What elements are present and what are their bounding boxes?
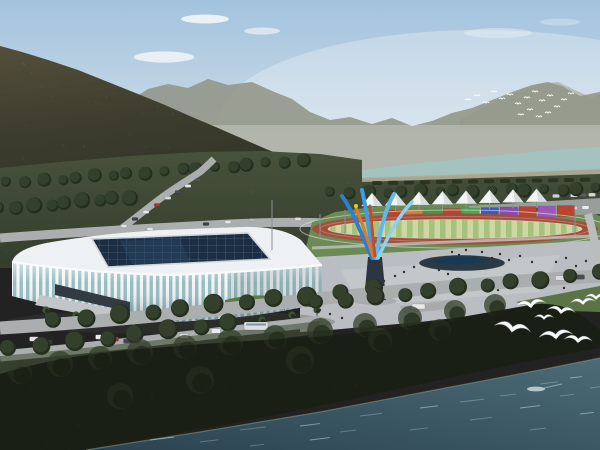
tree <box>78 310 93 325</box>
tree <box>146 305 160 319</box>
tree <box>569 182 581 194</box>
tree <box>239 295 253 309</box>
car <box>195 179 201 182</box>
tree <box>94 195 104 205</box>
car <box>165 197 171 200</box>
distant-tree-dash <box>436 180 446 184</box>
car <box>154 204 160 207</box>
tree <box>449 278 464 293</box>
pedestrian <box>473 256 475 258</box>
tree <box>398 288 410 300</box>
car <box>132 218 138 221</box>
car <box>203 223 209 226</box>
tree <box>88 168 100 180</box>
tree <box>309 295 321 307</box>
cloud <box>134 52 194 63</box>
palm-crown-shade <box>45 309 49 313</box>
pedestrian <box>394 275 396 277</box>
container-segment <box>538 206 556 217</box>
tree <box>481 279 493 291</box>
tree <box>171 300 186 315</box>
distant-tree-dash <box>468 180 478 184</box>
pedestrian <box>458 254 460 256</box>
distant-tree-dash <box>372 181 382 185</box>
parked-car <box>589 193 596 197</box>
tree <box>159 320 176 337</box>
car <box>147 228 153 231</box>
pedestrian <box>438 269 440 271</box>
tree <box>344 187 354 197</box>
palm-crown-shade <box>291 314 295 318</box>
tree <box>325 187 334 196</box>
tree <box>367 288 382 303</box>
car <box>185 185 191 188</box>
tree <box>111 305 128 322</box>
tree <box>518 184 530 196</box>
scene-canvas <box>0 0 600 450</box>
tree <box>447 184 457 194</box>
tree <box>204 294 221 311</box>
tree <box>126 325 141 340</box>
tree <box>47 200 57 210</box>
tree <box>159 166 168 175</box>
tree <box>194 320 208 334</box>
car <box>249 219 255 222</box>
palm-crown-shade <box>316 309 320 313</box>
distant-tree-dash <box>404 181 414 185</box>
tree <box>70 172 80 182</box>
tree <box>338 293 352 307</box>
car <box>212 329 221 334</box>
pedestrian <box>508 259 510 261</box>
tree <box>420 283 434 297</box>
tree <box>57 196 69 208</box>
distant-tree-dash <box>580 178 590 182</box>
tree <box>1 177 10 186</box>
pedestrian <box>447 273 449 275</box>
pedestrian <box>575 265 577 267</box>
pedestrian <box>555 261 557 263</box>
tree <box>503 274 517 288</box>
distant-tree-dash <box>484 179 494 183</box>
tree <box>74 193 88 207</box>
distant-tree-dash <box>516 179 526 183</box>
pedestrian <box>519 255 521 257</box>
pedestrian <box>585 260 587 262</box>
tree <box>122 190 136 204</box>
tree <box>120 167 130 177</box>
pedestrian <box>413 266 415 268</box>
tree <box>297 153 309 165</box>
distant-tree-dash <box>452 180 462 184</box>
distant-tree-dash <box>564 178 574 182</box>
pedestrian <box>491 257 493 259</box>
pedestrian <box>563 287 565 289</box>
tree <box>37 173 49 185</box>
distant-tree-dash <box>388 181 398 185</box>
tree <box>100 331 114 345</box>
tree <box>9 201 21 213</box>
tree <box>563 269 575 281</box>
tree <box>138 167 150 179</box>
tree <box>228 161 238 171</box>
tree <box>591 183 600 192</box>
tree <box>384 188 393 197</box>
pedestrian <box>531 261 533 263</box>
pedestrian <box>451 251 453 253</box>
aerial-rendering <box>0 0 600 450</box>
car <box>143 211 149 214</box>
parked-car <box>582 206 589 210</box>
car <box>225 221 231 224</box>
car <box>121 225 127 228</box>
distant-tree-dash <box>500 179 510 183</box>
tree <box>219 314 234 329</box>
cloud <box>540 19 580 26</box>
tree <box>178 163 188 173</box>
tree <box>19 176 29 186</box>
pedestrian <box>329 313 331 315</box>
distant-tree-dash <box>532 179 542 183</box>
pedestrian <box>565 257 567 259</box>
tree <box>65 331 82 348</box>
pedestrian <box>403 271 405 273</box>
tree <box>558 185 568 195</box>
tree <box>109 171 118 180</box>
distant-tree-dash <box>548 178 558 182</box>
car <box>175 191 181 194</box>
tree <box>33 337 48 352</box>
tree <box>105 191 117 203</box>
pedestrian <box>341 317 343 319</box>
tree <box>27 198 41 212</box>
car <box>556 276 565 281</box>
tree <box>45 312 59 326</box>
parked-car <box>553 194 560 198</box>
cloud <box>244 28 280 35</box>
tree <box>260 157 269 166</box>
car <box>295 218 301 221</box>
pedestrian <box>481 251 483 253</box>
tree <box>279 157 289 167</box>
tree <box>539 184 548 193</box>
pedestrian <box>465 249 467 251</box>
tree <box>532 272 547 287</box>
tree <box>0 340 14 354</box>
skylight-reflection <box>120 239 190 264</box>
tree <box>240 158 252 170</box>
tree <box>58 175 67 184</box>
cloud <box>464 28 532 38</box>
bus <box>244 322 268 330</box>
tree <box>265 289 280 304</box>
cloud <box>181 15 229 24</box>
bus-windows <box>246 324 266 326</box>
pedestrian <box>499 253 501 255</box>
